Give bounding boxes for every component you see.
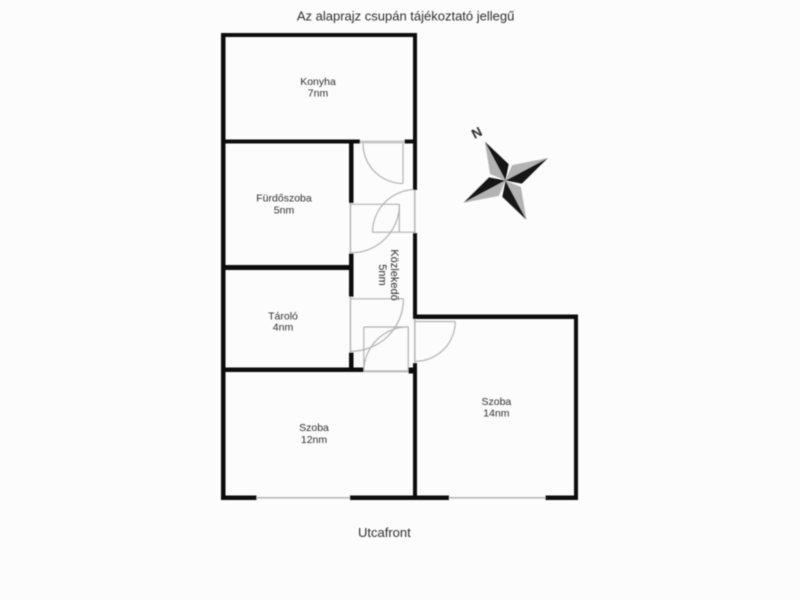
svg-text:Konyha: Konyha [300, 76, 336, 88]
svg-text:14nm: 14nm [483, 407, 510, 419]
svg-text:Szoba: Szoba [299, 422, 329, 434]
svg-text:Utcafront: Utcafront [358, 525, 411, 540]
svg-text:4nm: 4nm [273, 322, 294, 334]
svg-text:Közlekedő: Közlekedő [388, 249, 400, 300]
svg-text:12nm: 12nm [301, 434, 328, 446]
svg-text:Az alaprajz csupán tájékoztató: Az alaprajz csupán tájékoztató jellegű [297, 8, 515, 23]
svg-text:Fürdőszoba: Fürdőszoba [256, 193, 312, 205]
svg-text:Szoba: Szoba [482, 396, 512, 408]
svg-text:7nm: 7nm [308, 88, 329, 100]
svg-text:5nm: 5nm [274, 204, 295, 216]
svg-text:5nm: 5nm [376, 264, 388, 285]
